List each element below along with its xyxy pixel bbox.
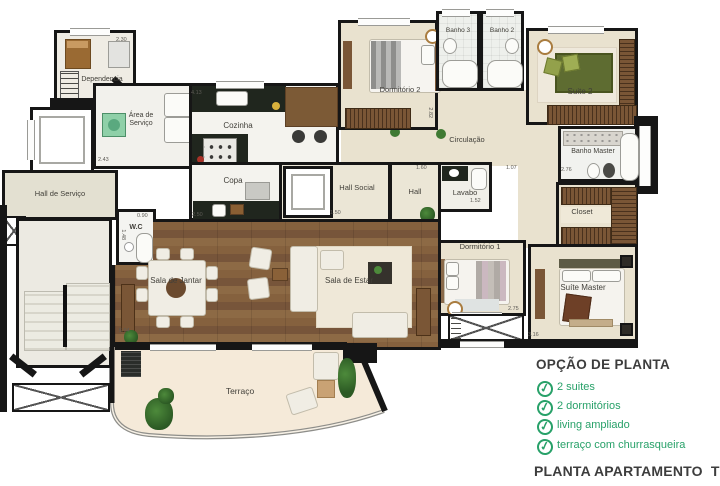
label-sala-jantar: Sala de Jantar — [139, 277, 213, 286]
terrace-plant-right — [338, 358, 356, 398]
copa-coffee-maker — [212, 204, 226, 217]
label-hall-social: Hall Social — [338, 184, 376, 192]
room-banho2 — [480, 11, 524, 91]
dining-chair-1 — [156, 248, 170, 260]
stairs-rail — [63, 285, 67, 347]
stove-icon — [203, 138, 237, 164]
dim-4-13: 4.13 — [191, 91, 202, 97]
lavabo-tub — [471, 168, 487, 190]
check-icon-3: ✓ — [536, 418, 555, 437]
label-hall: Hall — [395, 188, 435, 196]
window-banho-master — [639, 126, 651, 186]
dorm2-blanket — [371, 41, 401, 89]
label-closet: Closet — [560, 208, 604, 216]
terrace-plant-left-2 — [158, 388, 174, 404]
service-machine — [164, 117, 192, 143]
dim-2-76: 2.76 — [561, 168, 572, 174]
dorm2-dresser — [343, 41, 352, 89]
living-side-table — [272, 268, 288, 281]
dining-chair-2 — [180, 248, 194, 260]
room-dormitorio2 — [338, 20, 438, 130]
living-armchair — [320, 250, 344, 270]
window-banho3 — [442, 9, 470, 17]
label-suite-master: Suíte Master — [550, 284, 616, 293]
corridor-banhos-floor — [436, 88, 524, 128]
room-copa — [189, 162, 282, 221]
terrace-table — [317, 380, 335, 398]
feature-2-dormitorios: 2 dormitórios — [557, 400, 621, 412]
label-hall-servico: Hall de Serviço — [14, 190, 106, 198]
window-cozinha — [216, 81, 264, 89]
label-sala-estar: Sala de Estar — [314, 277, 384, 286]
label-area-servico: Área de Serviço — [124, 112, 158, 128]
service-elevator — [30, 107, 94, 173]
dining-chair-4 — [180, 316, 194, 328]
service-sink — [164, 93, 192, 117]
window-dependencia — [70, 28, 110, 36]
room-suite2 — [526, 28, 638, 125]
label-banho3: Banho 3 — [437, 27, 479, 34]
label-copa: Copa — [209, 177, 257, 186]
room-banho3 — [436, 11, 480, 91]
dim-1-60: 1.60 — [416, 166, 427, 172]
suite2-lamp — [537, 39, 553, 55]
room-lavabo — [438, 162, 492, 212]
window-banho2 — [486, 9, 514, 17]
dim-2-75: 2.75 — [508, 307, 519, 313]
shaft-ladder — [451, 317, 461, 339]
window-bottom-right-1 — [460, 341, 504, 348]
suite-master-headboard — [559, 259, 623, 268]
closet-shelf-right — [611, 187, 637, 249]
kitchen-stool-1 — [292, 130, 305, 143]
kitchen-table — [285, 87, 338, 127]
label-banho2: Banho 2 — [481, 27, 523, 34]
suite2-wardrobe-right — [619, 39, 635, 109]
banho2-tub — [487, 60, 523, 88]
label-dependencia: Dependencia — [66, 76, 138, 84]
suite-master-bench — [569, 319, 613, 327]
suite-master-pillow-2 — [592, 270, 621, 282]
dorm2-wardrobe — [345, 108, 411, 129]
wc-sink — [124, 242, 134, 252]
label-suite2: Suite 2 — [548, 88, 612, 97]
label-lavabo: Lavabo — [440, 189, 490, 197]
stair-hall — [16, 218, 112, 368]
feature-2-suites: 2 suites — [557, 381, 595, 393]
washer-drum — [108, 119, 120, 131]
label-banho-master: Banho Master — [562, 148, 624, 156]
floor-plan-page: Hall de Serviço — [0, 0, 720, 486]
corridor-circulacao-floor — [341, 126, 527, 166]
dim-3-16: 3.16 — [528, 333, 539, 339]
label-cozinha: Cozinha — [206, 122, 270, 131]
feature-living-ampliado: living ampliado — [557, 419, 630, 431]
lavabo-sink — [449, 169, 459, 177]
banho-master-toilet — [603, 163, 615, 178]
window-dorm2 — [358, 18, 410, 26]
suite2-wardrobe-bottom — [547, 105, 637, 125]
living-sofa — [352, 312, 408, 338]
options-title: OPÇÃO DE PLANTA — [536, 357, 670, 372]
suite2-pillow-2 — [562, 54, 581, 73]
stairs-flight-left — [24, 291, 66, 351]
living-pouf-2 — [247, 277, 270, 300]
feature-terraco-churrasqueira: terraço com churrasqueira — [557, 439, 685, 451]
terrace-chair — [313, 352, 339, 380]
room-dormitorio1 — [436, 240, 526, 316]
dorm2-pillow — [421, 45, 435, 65]
dining-chair-8 — [206, 288, 218, 302]
social-elevator — [283, 166, 333, 218]
wall-left-edge — [0, 205, 7, 412]
window-suite2 — [548, 26, 604, 34]
dorm1-pillow-1 — [446, 262, 459, 276]
suite-master-pillow-1 — [562, 270, 591, 282]
dorm1-pillow-2 — [446, 276, 459, 290]
dependencia-pillow — [67, 41, 88, 48]
suite-master-nightstand-2 — [620, 323, 633, 336]
dim-1-52: 1.52 — [470, 199, 481, 205]
label-circulacao: Circulação — [430, 136, 504, 144]
living-desk — [416, 288, 431, 336]
check-icon-4: ✓ — [536, 438, 555, 457]
kitchen-bowl — [272, 102, 280, 110]
dim-2-30: 2.30 — [116, 38, 127, 44]
dining-chair-6 — [136, 288, 148, 302]
kitchen-sink — [216, 91, 248, 106]
suite-master-nightstand-1 — [620, 255, 633, 268]
dim-2-43: 2.43 — [98, 158, 109, 164]
dependencia-shower — [108, 41, 130, 68]
dim-1-07: 1.07 — [506, 166, 517, 172]
terrace-grill — [121, 351, 141, 377]
copa-tray — [230, 204, 244, 215]
room-suite-master — [528, 244, 638, 344]
dim-1-50: 1.50 — [330, 211, 341, 217]
social-elevator-cab — [291, 174, 325, 210]
suite-master-dresser — [535, 269, 545, 319]
banho3-sink — [443, 38, 457, 54]
shaft-x-bottom — [12, 383, 110, 412]
wc-shower — [136, 233, 153, 263]
living-pouf-1 — [248, 246, 272, 270]
banho-master-bidet — [587, 163, 600, 179]
label-terraco: Terraço — [210, 387, 270, 397]
banho-master-counter — [563, 131, 623, 146]
window-elevator-left — [27, 120, 35, 160]
dim-2-50: 2.50 — [192, 213, 203, 219]
dorm1-blanket — [476, 261, 506, 301]
window-terrace-2 — [252, 344, 312, 351]
banho-master-tub — [620, 133, 639, 181]
label-dormitorio1: Dormitório 1 — [446, 243, 514, 251]
check-icon-2: ✓ — [536, 399, 555, 418]
dim-5-04: 5.04 — [119, 329, 130, 335]
options-footer: PLANTA APARTAMENTO TIPO C — [534, 463, 720, 479]
service-elevator-cab — [39, 116, 85, 164]
dim-0-90: 0.90 — [137, 214, 148, 220]
kitchen-stool-2 — [314, 130, 327, 143]
window-terrace-1 — [150, 344, 216, 351]
dim-2-82: 2.82 — [427, 107, 433, 118]
coffee-table-plant-icon — [374, 266, 382, 274]
dining-sideboard — [121, 284, 135, 332]
dim-1-48: 1.48 — [120, 229, 126, 240]
check-icon-1: ✓ — [536, 380, 555, 399]
dining-chair-3 — [156, 316, 170, 328]
banho3-tub — [442, 60, 478, 88]
label-dormitorio2: Dormitório 2 — [368, 86, 432, 94]
banho2-sink — [505, 38, 519, 54]
